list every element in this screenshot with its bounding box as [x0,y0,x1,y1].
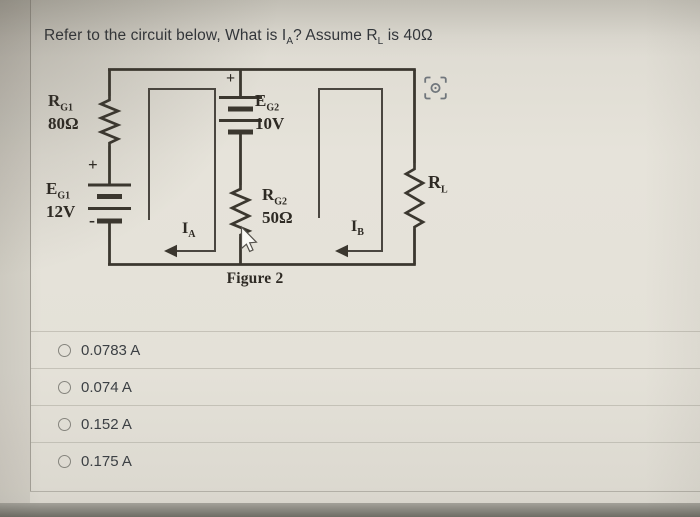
option-label: 0.152 A [81,416,132,433]
circuit-diagram: RG1 80Ω + EG1 12V - + EG2 10V RG2 50Ω RL… [40,60,480,305]
question-part: is 40Ω [383,27,432,44]
label-minus-left: - [89,210,95,231]
radio-button[interactable] [58,381,71,394]
label-eg2: EG2 10V [255,91,284,134]
resistor-rg2 [232,185,249,237]
answer-option[interactable]: 0.0783 A [30,331,700,368]
question-text: Refer to the circuit below, What is IA? … [44,27,604,47]
content-bottom-border [30,491,700,492]
label-ib: IB [351,218,364,239]
radio-button[interactable] [58,455,71,468]
label-ia: IA [182,220,195,241]
question-part: Refer to the circuit below, What is I [44,27,286,44]
option-label: 0.175 A [81,453,132,470]
label-plus-left: + [88,155,98,175]
resistor-rl [406,163,423,229]
screen-bottom-bezel [0,503,700,517]
label-rg2: RG2 50Ω [262,185,293,228]
figure-caption: Figure 2 [190,270,320,288]
radio-button[interactable] [58,418,71,431]
answer-option[interactable]: 0.175 A [30,442,700,479]
answer-options-list: 0.0783 A 0.074 A 0.152 A 0.175 A [30,331,700,479]
option-label: 0.0783 A [81,342,140,359]
current-arrow-ia [164,245,177,257]
answer-option[interactable]: 0.152 A [30,405,700,442]
question-part: ? Assume R [293,27,378,44]
resistor-rg1 [101,96,118,146]
label-rl: RL [428,172,448,196]
option-label: 0.074 A [81,379,132,396]
label-plus-mid: + [226,70,235,89]
label-rg1: RG1 80Ω [48,91,79,134]
screen-edge-shade [0,0,30,503]
current-arrow-ib [335,245,348,257]
radio-button[interactable] [58,344,71,357]
focus-viewfinder-icon[interactable] [425,78,446,99]
label-eg1: EG1 12V [46,179,75,222]
answer-option[interactable]: 0.074 A [30,368,700,405]
